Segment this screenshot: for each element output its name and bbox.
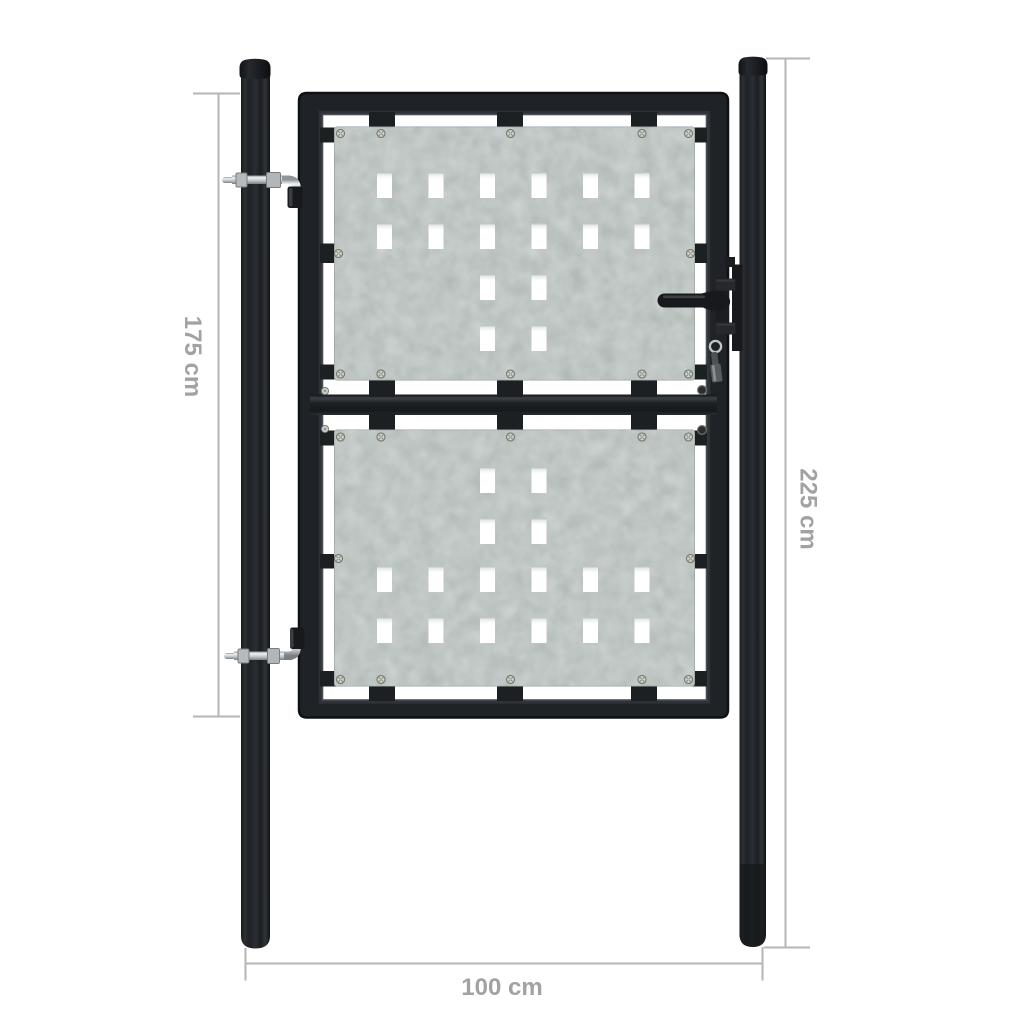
svg-text:100 cm: 100 cm [461,974,542,1001]
svg-text:175 cm: 175 cm [179,316,206,397]
svg-text:225 cm: 225 cm [795,468,822,549]
